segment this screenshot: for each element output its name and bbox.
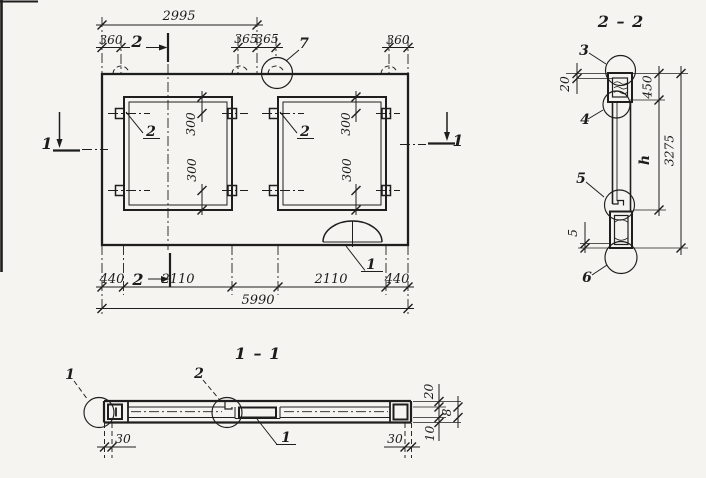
plan-dim-2110-left: 2110	[160, 272, 194, 287]
section-2-2-callouts	[586, 53, 637, 275]
opening-right	[262, 91, 400, 215]
label-1-insert: 1	[281, 430, 291, 446]
section-mark-1-right	[428, 112, 455, 144]
label-1-left: 1	[65, 367, 75, 383]
detail-circle-4	[603, 91, 630, 118]
opening-left-label: 2	[145, 124, 156, 140]
plan-dim-2110-right: 2110	[313, 272, 347, 287]
label-6: 6	[582, 270, 592, 286]
plan-dim-440-right: 440	[384, 272, 410, 287]
section-1-1: 1 – 1	[65, 344, 462, 458]
label-2-center: 2	[193, 366, 204, 382]
dim-10-11: 10	[423, 426, 437, 442]
arch-label-1: 1	[366, 257, 376, 273]
dim-20: 20	[558, 76, 572, 93]
section-mark-2-top	[146, 33, 168, 62]
section-mark-1-left	[53, 112, 80, 151]
plan-view: 2995 360 365 365 360 7 2 2 1 1 2 2 300 3…	[41, 9, 463, 315]
plan-dim-2995: 2995	[161, 9, 195, 24]
plan-dim-440-left: 440	[99, 272, 125, 287]
detail-circle-1	[84, 398, 114, 428]
dim-h: h	[637, 155, 653, 165]
opening-right-label: 2	[299, 124, 310, 140]
insert-plate	[239, 408, 276, 418]
panel-outline	[102, 74, 408, 245]
plan-mark-2-top: 2	[130, 32, 142, 51]
dim-450: 450	[641, 75, 655, 100]
panel-top-notches	[113, 66, 397, 74]
plan-dim-360-right: 360	[386, 33, 410, 47]
plan-dim-5990: 5990	[241, 293, 274, 308]
label-4: 4	[580, 112, 590, 128]
dim-20-11: 20	[422, 384, 436, 401]
technical-drawing-sheet: 2995 360 365 365 360 7 2 2 1 1 2 2 300 3…	[0, 0, 706, 478]
detail-circle-7	[262, 50, 300, 89]
section-2-2-title: 2 – 2	[597, 12, 644, 31]
detail-circle-6	[605, 242, 637, 274]
plan-mark-1-right: 1	[452, 131, 463, 150]
dim-8-11: 8	[440, 408, 454, 416]
plan-dim-300-rt: 300	[339, 112, 353, 136]
detail-circle-3	[606, 56, 636, 86]
plan-dim-300-lb: 300	[185, 158, 199, 182]
dim-3275: 3275	[663, 135, 677, 166]
section-1-1-title: 1 – 1	[235, 344, 281, 363]
plan-dim-300-lt: 300	[184, 112, 198, 136]
plan-label-7: 7	[299, 36, 309, 52]
plan-dim-300-rb: 300	[340, 158, 354, 182]
plan-mark-1-left: 1	[41, 134, 52, 153]
section-1-1-dimensions	[97, 384, 463, 458]
blueprint-canvas: 2995 360 365 365 360 7 2 2 1 1 2 2 300 3…	[0, 0, 706, 478]
plan-dim-360-left: 360	[99, 33, 123, 47]
plan-dim-365-b: 365	[255, 32, 279, 46]
dim-5: 5	[566, 229, 580, 237]
label-5: 5	[576, 171, 586, 187]
plan-mark-2-bottom: 2	[131, 270, 143, 289]
opening-left	[108, 91, 248, 215]
dim-30-right: 30	[387, 432, 403, 446]
scan-artifacts	[0, 0, 38, 272]
label-3: 3	[579, 43, 589, 59]
section-2-2: 2 – 2	[558, 12, 688, 286]
dim-30-left: 30	[115, 432, 131, 446]
